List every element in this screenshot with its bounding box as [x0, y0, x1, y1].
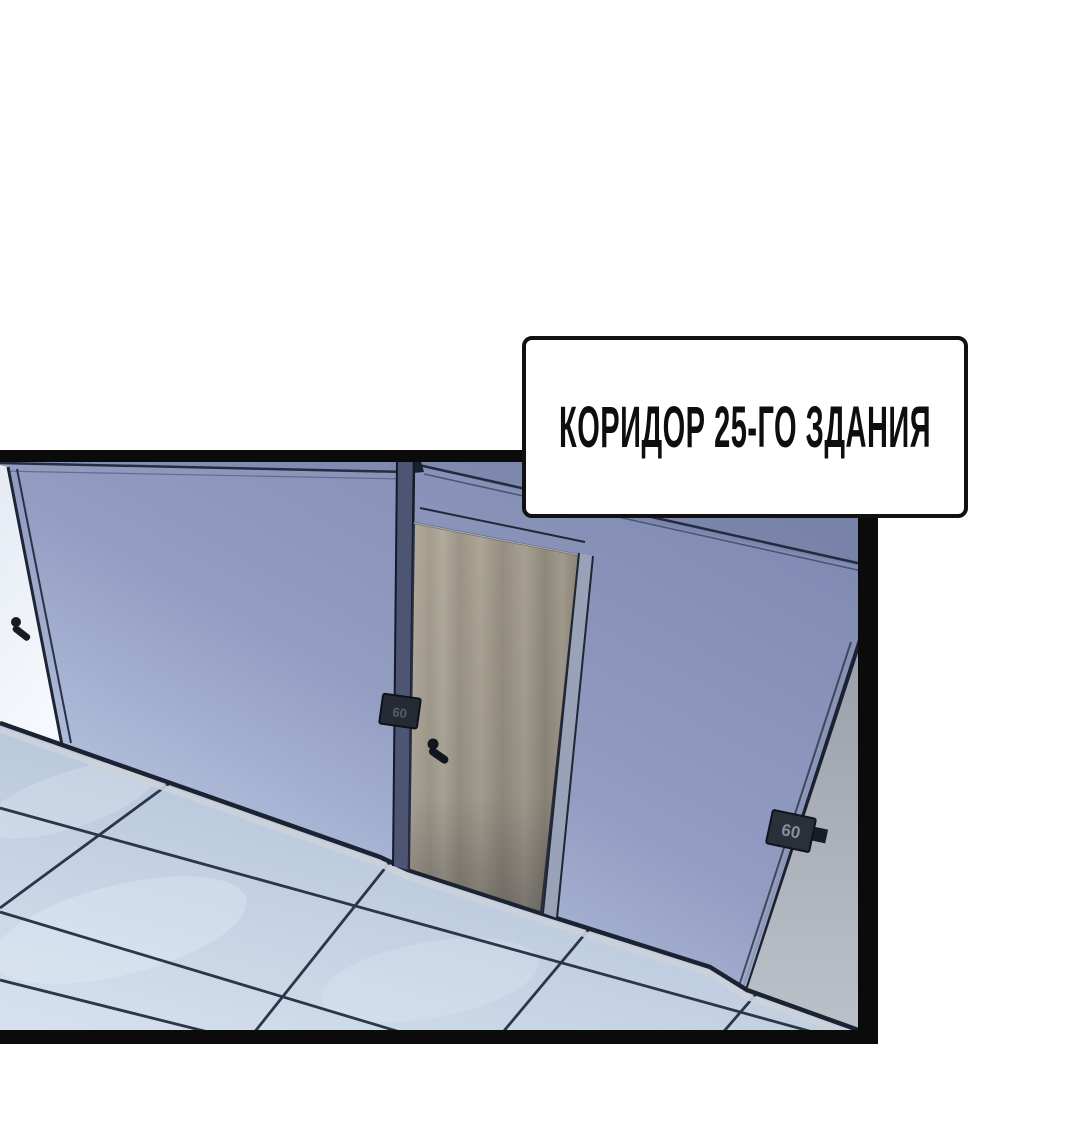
comic-page: { "comic": { "caption": { "text": "КОРИД…: [0, 0, 1080, 1136]
door-room-plaque: 60: [379, 694, 421, 729]
room-number-plaque-label: 60: [780, 820, 802, 843]
panel-border-bottom: [0, 1030, 878, 1044]
panel-frame: 60 60: [0, 450, 878, 1044]
caption-text: КОРИДОР 25-ГО ЗДАНИЯ: [559, 394, 931, 461]
caption-box: КОРИДОР 25-ГО ЗДАНИЯ: [522, 336, 968, 518]
panel-border-right: [858, 450, 878, 1044]
door-room-plaque-label: 60: [392, 704, 408, 721]
